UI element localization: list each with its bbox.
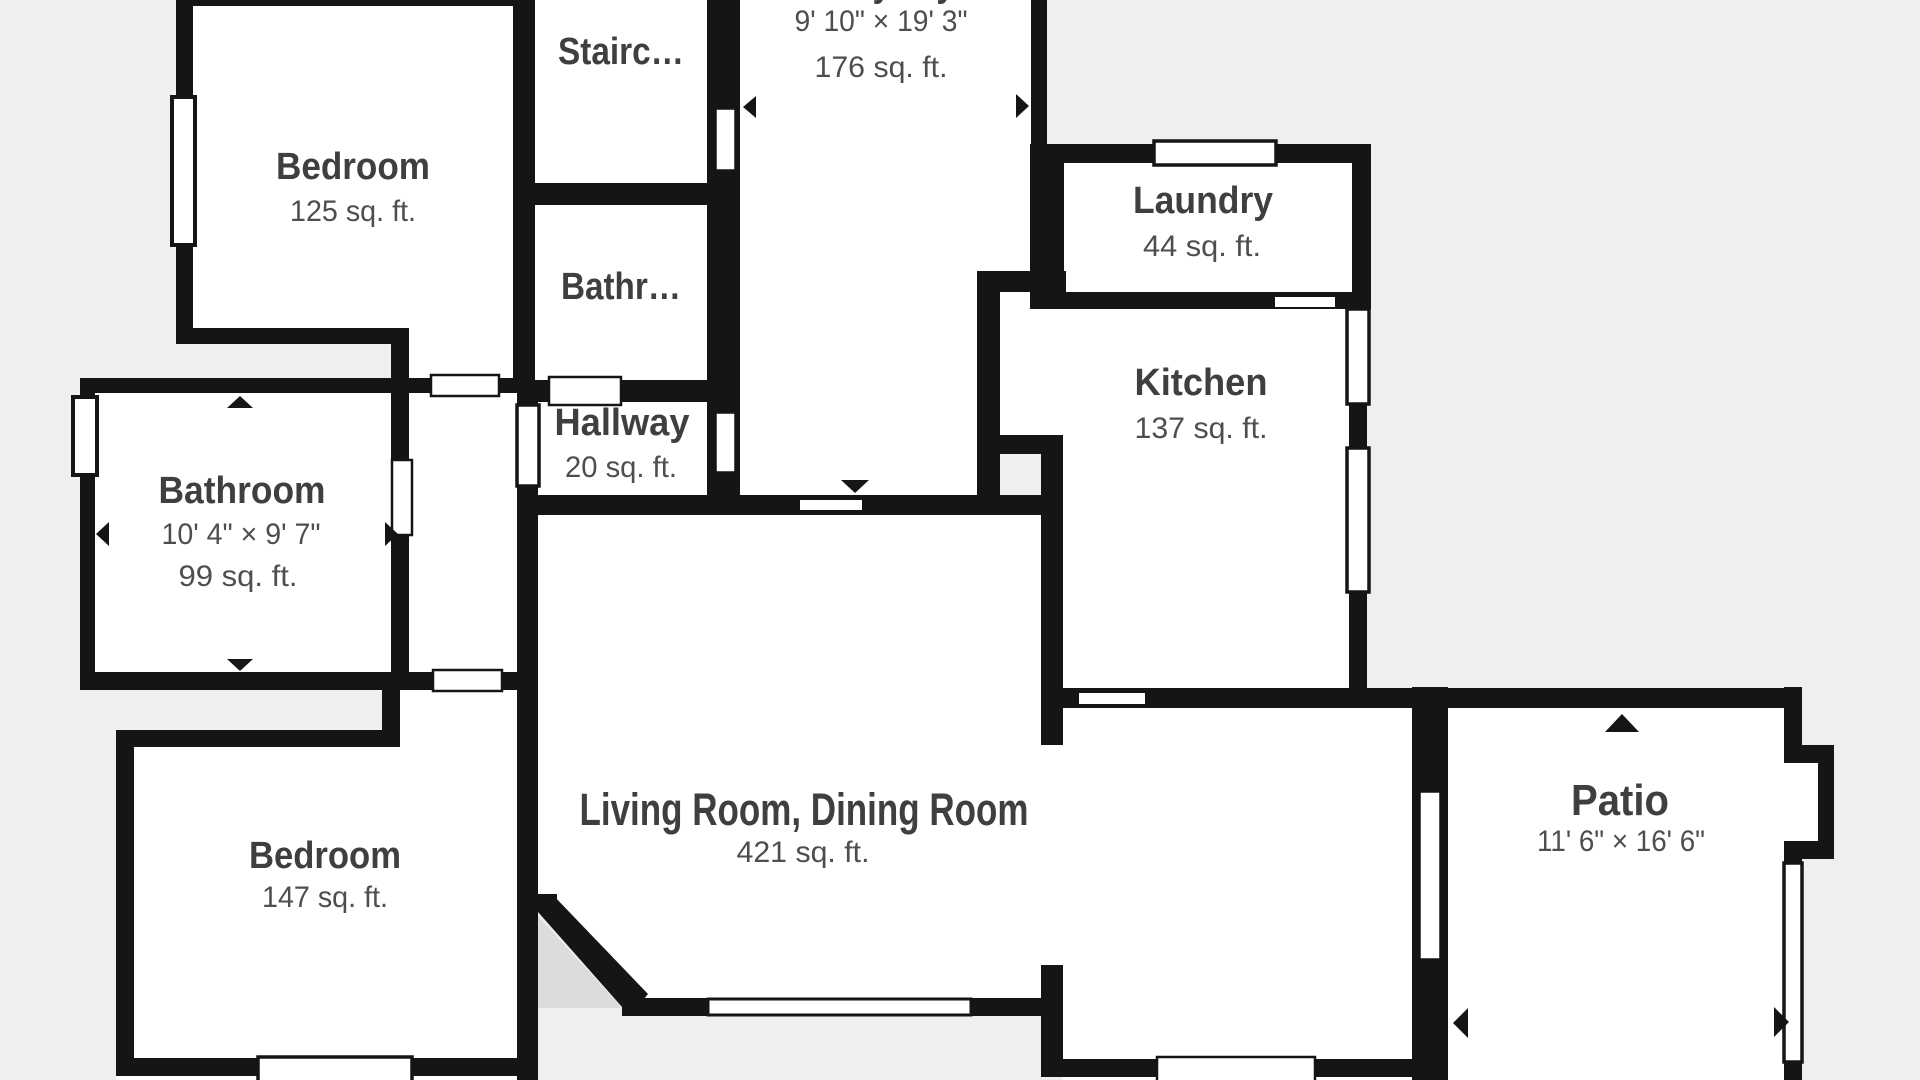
- svg-text:Bedroom: Bedroom: [249, 835, 401, 877]
- svg-text:44 sq. ft.: 44 sq. ft.: [1143, 230, 1261, 263]
- svg-text:147 sq. ft.: 147 sq. ft.: [262, 881, 388, 914]
- svg-text:Bathroom: Bathroom: [159, 470, 326, 512]
- svg-text:421 sq. ft.: 421 sq. ft.: [737, 836, 870, 869]
- svg-text:137 sq. ft.: 137 sq. ft.: [1135, 412, 1268, 445]
- svg-text:125 sq. ft.: 125 sq. ft.: [290, 195, 416, 228]
- svg-text:99 sq. ft.: 99 sq. ft.: [179, 560, 298, 593]
- svg-text:Living Room, Dining Room: Living Room, Dining Room: [580, 784, 1029, 835]
- svg-text:9' 10" × 19' 3": 9' 10" × 19' 3": [795, 5, 968, 38]
- svg-text:Stairc…: Stairc…: [558, 31, 684, 73]
- svg-text:Laundry: Laundry: [1133, 180, 1273, 222]
- svg-text:Kitchen: Kitchen: [1135, 362, 1268, 404]
- svg-text:Entryway: Entryway: [805, 0, 955, 5]
- svg-text:10' 4" × 9' 7": 10' 4" × 9' 7": [162, 518, 321, 551]
- svg-text:Bathr…: Bathr…: [561, 266, 681, 308]
- svg-text:20 sq. ft.: 20 sq. ft.: [565, 451, 677, 484]
- svg-text:Patio: Patio: [1571, 776, 1669, 825]
- svg-text:Bedroom: Bedroom: [276, 146, 430, 188]
- svg-text:Hallway: Hallway: [555, 402, 690, 444]
- svg-text:11' 6" × 16' 6": 11' 6" × 16' 6": [1537, 825, 1705, 858]
- svg-text:176 sq. ft.: 176 sq. ft.: [815, 51, 948, 84]
